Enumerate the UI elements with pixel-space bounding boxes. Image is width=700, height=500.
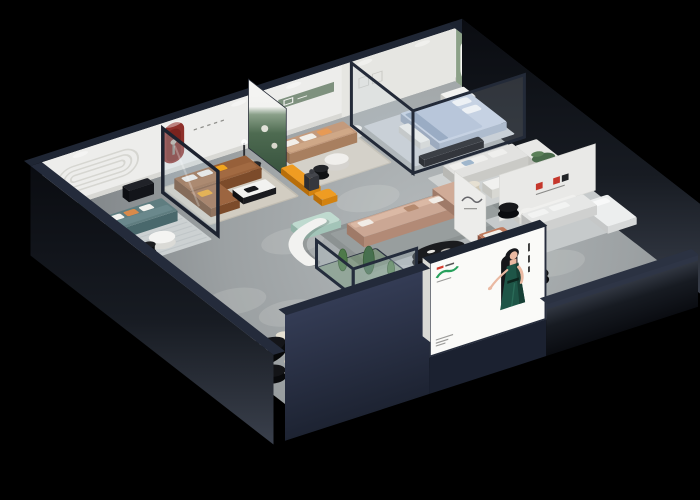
signature-subtext-dash — [464, 208, 477, 209]
forest-poster-badge-2 — [271, 143, 277, 149]
statue-figure — [309, 169, 314, 174]
showroom-render — [0, 0, 700, 500]
poster-vertical-text-2 — [528, 266, 530, 272]
poster-vertical-text-0 — [528, 243, 530, 252]
floor-lamp-glow — [241, 139, 247, 145]
poster-vertical-text-1 — [528, 255, 530, 263]
forest-poster-badge-1 — [261, 125, 268, 132]
isometric-scene — [0, 0, 700, 500]
